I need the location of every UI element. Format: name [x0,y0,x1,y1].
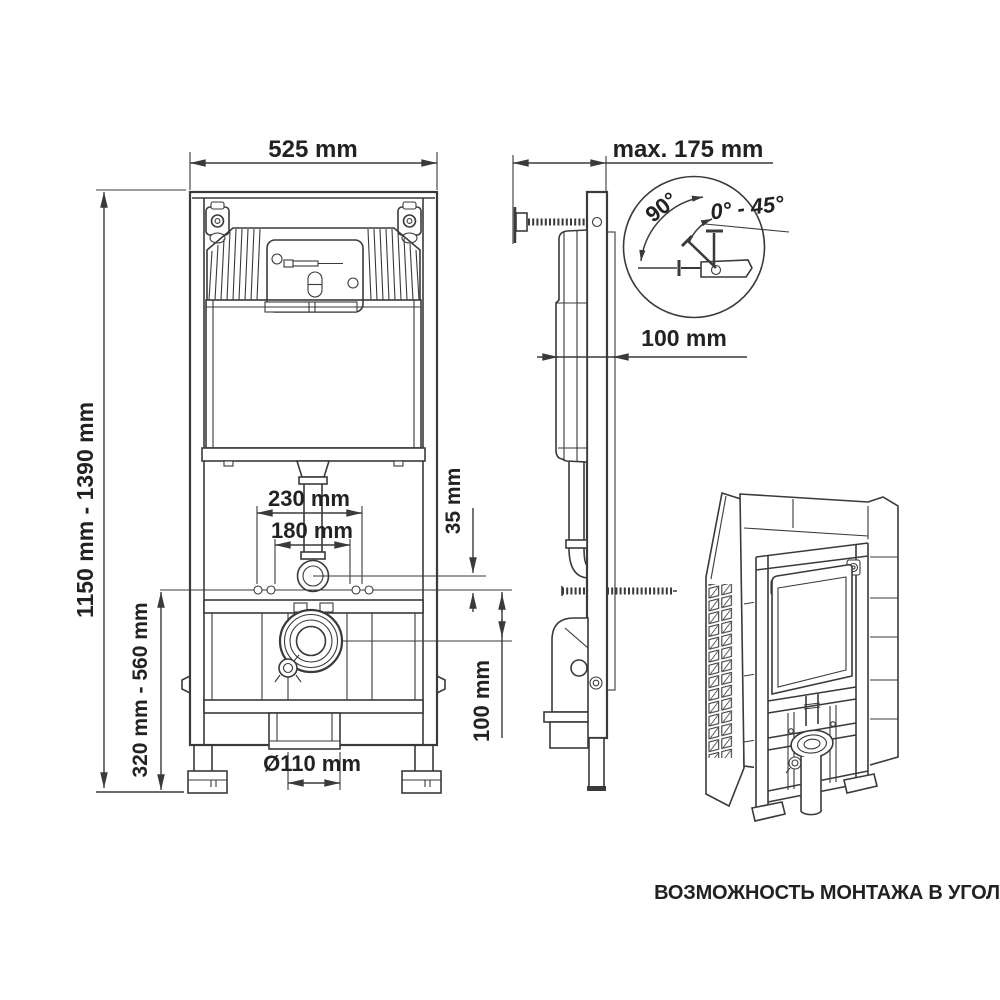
technical-drawing-page: 525 mm 1150 mm - 1390 mm 320 mm - 560 mm… [0,0,1000,1000]
foot-left [188,771,227,793]
side-lug-left [182,676,190,693]
corner-installation-view: ВОЗМОЖНОСТЬ МОНТАЖА В УГОЛ [654,493,1000,904]
iso-cistern-panel [772,565,852,694]
front-width-dimension-label: 525 mm [268,136,357,163]
tank-profile [556,230,587,462]
front-height-dimension-label: 1150 mm - 1390 mm [72,402,98,618]
mounting-bracket-right [398,202,421,243]
iso-frame [752,539,877,822]
cistern-tank [202,228,425,466]
foot-right [402,771,441,793]
corner-caption: ВОЗМОЖНОСТЬ МОНТАЖА В УГОЛ [654,882,1000,904]
wc-studs [562,586,677,596]
side-wall-blocks [706,493,744,806]
drain-sleeve [269,713,340,749]
stud-spacing-narrow-label: 180 mm [271,518,353,543]
tank-body [206,300,421,448]
lower-frame [204,600,423,749]
side-rail [587,192,607,738]
frame-depth-label: 100 mm [641,325,727,351]
installation-frame-drawing: 525 mm 1150 mm - 1390 mm 320 mm - 560 mm… [0,0,1000,1000]
back-plate [607,232,615,690]
base-height-dimension-label: 320 mm - 560 mm [129,602,152,777]
flush-offset-label: 35 mm [442,468,465,535]
iso-down-pipe [801,755,821,815]
stud-spacing-wide-label: 230 mm [268,486,350,511]
angle-range-label: 0° - 45° [709,191,786,225]
front-view: 525 mm 1150 mm - 1390 mm 320 mm - 560 mm… [72,136,512,793]
hollow-block-cells [708,584,734,758]
angle-90-label: 90° [641,187,683,227]
max-depth-label: max. 175 mm [613,136,764,163]
side-lug-right [437,676,445,693]
mounting-bracket-left [206,202,229,243]
side-dimensions: max. 175 mm 100 mm [513,136,773,357]
side-structure [515,192,677,791]
drain-offset-label: 100 mm [469,660,494,742]
rotation-detail: 90° 0° - 45° [624,177,790,318]
drain-diameter-label: Ø110 mm [263,751,361,776]
tank-base-rim [202,448,425,461]
